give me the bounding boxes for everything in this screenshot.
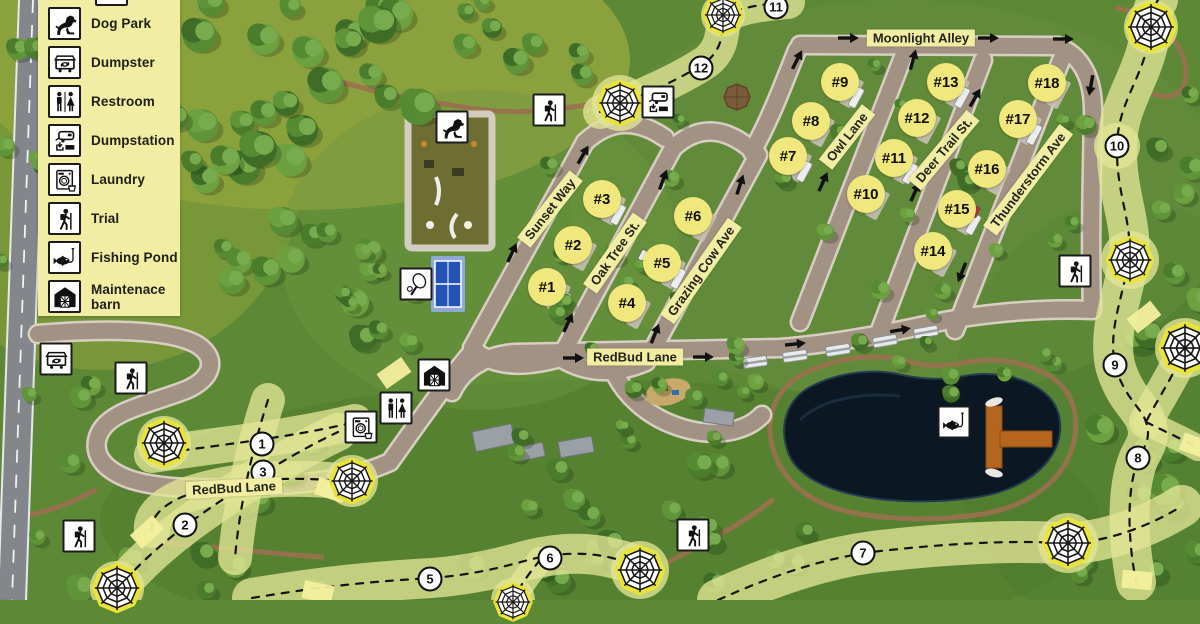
legend-item-label: Laundry bbox=[91, 172, 145, 187]
legend-item-label: Maintenace barn bbox=[91, 282, 180, 312]
dumpster-icon bbox=[48, 46, 81, 79]
laundry-icon bbox=[48, 163, 81, 196]
legend-item-label: Restroom bbox=[91, 94, 155, 109]
legend-item-dumpstation: Dumpstation bbox=[38, 121, 180, 160]
legend-item-laundry: Laundry bbox=[38, 160, 180, 199]
campground-map: #1#2#3#4#5#6#7#8#9#10#11#12#13#14#15#16#… bbox=[0, 0, 1200, 600]
barn-icon bbox=[48, 280, 81, 313]
restroom-icon bbox=[48, 85, 81, 118]
hiker-icon bbox=[48, 202, 81, 235]
legend-item-label: Dog Park bbox=[91, 16, 151, 31]
legend-item-label: Fishing Pond bbox=[91, 250, 178, 265]
dog-icon bbox=[48, 7, 81, 40]
legend-item-dumpster: Dumpster bbox=[38, 43, 180, 82]
legend-partial-icon bbox=[95, 0, 128, 6]
dumpstation-icon bbox=[48, 124, 81, 157]
legend-item-trial: Trial bbox=[38, 199, 180, 238]
legend-item-fishing-pond: Fishing Pond bbox=[38, 238, 180, 277]
legend-item-dog-park: Dog Park bbox=[38, 4, 180, 43]
legend-item-label: Trial bbox=[91, 211, 119, 226]
legend-item-restroom: Restroom bbox=[38, 82, 180, 121]
fish-icon bbox=[48, 241, 81, 274]
map-base-art bbox=[0, 0, 1200, 600]
map-legend: Dog ParkDumpsterRestroomDumpstationLaund… bbox=[38, 0, 180, 316]
legend-item-maintenace-barn: Maintenace barn bbox=[38, 277, 180, 316]
legend-item-label: Dumpster bbox=[91, 55, 155, 70]
legend-item-label: Dumpstation bbox=[91, 133, 175, 148]
